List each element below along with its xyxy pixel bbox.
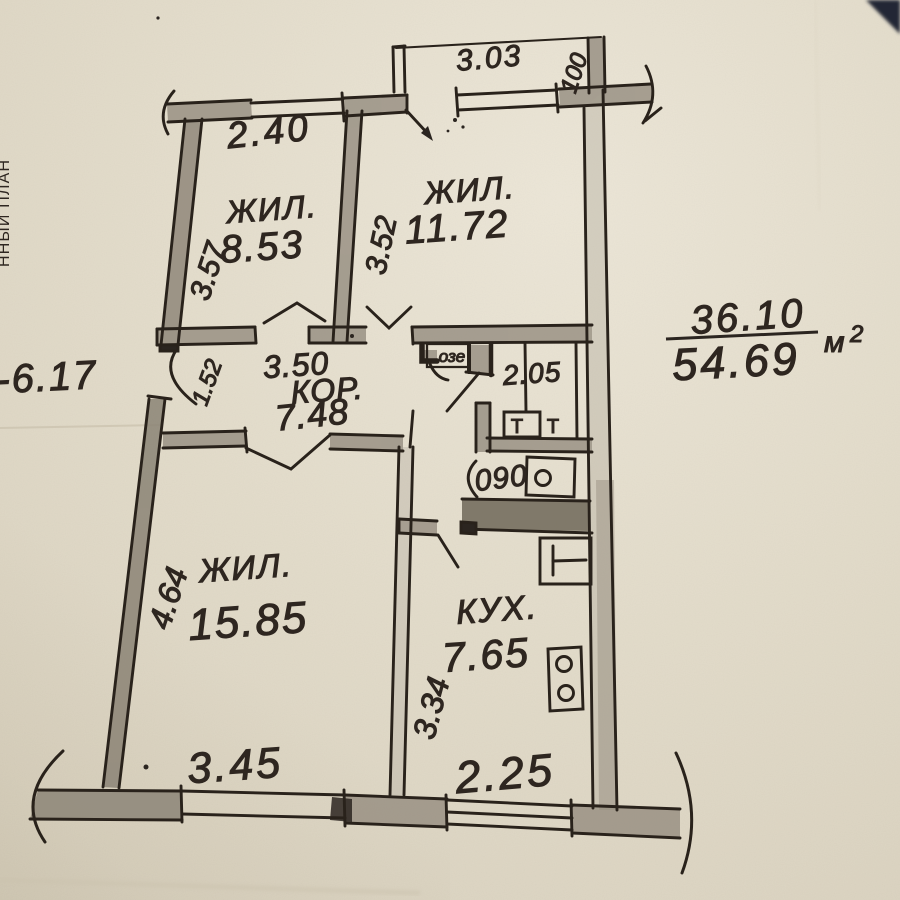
svg-text:7.65: 7.65 <box>441 629 532 681</box>
svg-text:Т: Т <box>511 416 523 438</box>
svg-text:КУХ.: КУХ. <box>455 588 539 632</box>
svg-text:3.45: 3.45 <box>186 739 285 794</box>
svg-text:2: 2 <box>849 321 863 348</box>
svg-text:озе: озе <box>439 347 465 366</box>
svg-text:2.25: 2.25 <box>452 744 557 804</box>
svg-text:090: 090 <box>473 459 530 498</box>
svg-text:8.53: 8.53 <box>219 223 306 272</box>
svg-text:м: м <box>824 326 845 359</box>
svg-text:ННЫЙ ПЛАН: ННЫЙ ПЛАН <box>0 159 13 267</box>
svg-text:11.72: 11.72 <box>403 202 510 252</box>
svg-text:54.69: 54.69 <box>671 333 801 391</box>
svg-text:ЖИЛ.: ЖИЛ. <box>196 546 294 590</box>
svg-text:-6.17: -6.17 <box>0 353 98 402</box>
svg-text:7.48: 7.48 <box>273 390 351 439</box>
svg-text:15.85: 15.85 <box>186 593 309 650</box>
svg-text:2.05: 2.05 <box>501 356 563 391</box>
svg-text:ЖИЛ.: ЖИЛ. <box>223 188 318 230</box>
svg-text:3.03: 3.03 <box>455 39 524 78</box>
svg-text:Т: Т <box>547 416 559 438</box>
